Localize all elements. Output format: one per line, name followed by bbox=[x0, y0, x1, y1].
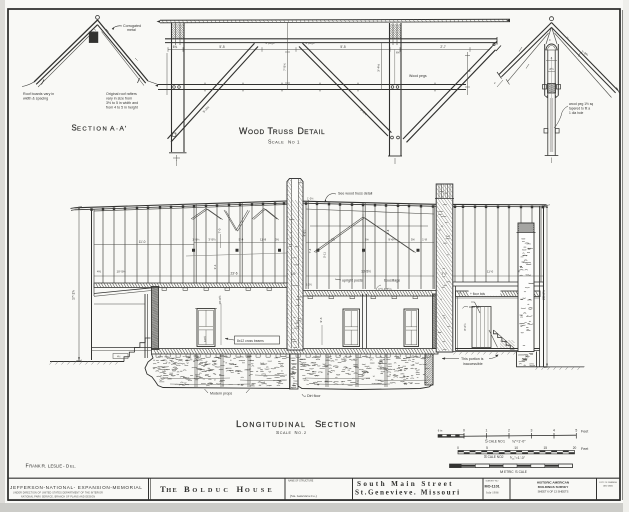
svg-text:ESLIE: ESLIE bbox=[51, 464, 63, 469]
svg-text:2 pegs: 2 pegs bbox=[265, 41, 275, 45]
svg-text:5'-5: 5'-5 bbox=[340, 45, 345, 49]
svg-text:3'-5½: 3'-5½ bbox=[208, 238, 216, 242]
svg-text:3½: 3½ bbox=[275, 238, 280, 242]
svg-text:This portion is: This portion is bbox=[461, 357, 484, 361]
svg-text:from 4 to 5 in height: from 4 to 5 in height bbox=[106, 106, 138, 110]
svg-text:2'-7: 2'-7 bbox=[440, 45, 445, 49]
svg-text:See wood truss detail: See wood truss detail bbox=[338, 192, 373, 196]
svg-text:3: 3 bbox=[531, 429, 533, 433]
svg-text:5'-5: 5'-5 bbox=[219, 45, 224, 49]
svg-text:7'-5¾: 7'-5¾ bbox=[283, 63, 287, 71]
svg-text:ETRIC: ETRIC bbox=[504, 470, 514, 474]
svg-text:10'-5¾: 10'-5¾ bbox=[116, 270, 126, 274]
svg-text:11'-8: 11'-8 bbox=[260, 238, 267, 242]
svg-text:3'-4⅛: 3'-4⅛ bbox=[377, 64, 381, 72]
svg-text:23'-6: 23'-6 bbox=[231, 272, 238, 276]
svg-text:South Main Street: South Main Street bbox=[357, 480, 454, 488]
svg-text:8'-6½: 8'-6½ bbox=[463, 323, 467, 331]
svg-text:R. L: R. L bbox=[42, 464, 51, 470]
svg-text:UNDER DIRECTION OF UNITED STAT: UNDER DIRECTION OF UNITED STATES DEPARTM… bbox=[13, 492, 103, 495]
svg-text:RANK: RANK bbox=[29, 464, 41, 469]
svg-text:3'-0: 3'-0 bbox=[442, 272, 447, 276]
svg-text:CALE: CALE bbox=[280, 431, 292, 435]
svg-text:S: S bbox=[484, 454, 487, 459]
svg-text:COPY OF DRAWING: COPY OF DRAWING bbox=[599, 481, 618, 484]
svg-text:A·A’: A·A’ bbox=[110, 126, 128, 133]
svg-text:. 2: . 2 bbox=[302, 430, 306, 435]
svg-text:6¾: 6¾ bbox=[365, 238, 370, 242]
svg-text:Wood pegs: Wood pegs bbox=[409, 74, 427, 78]
svg-text:(7½ & 8½): (7½ & 8½) bbox=[378, 287, 392, 291]
svg-text:4-6½: 4-6½ bbox=[203, 335, 207, 342]
svg-text:ONGITUDINAL: ONGITUDINAL bbox=[243, 422, 307, 429]
svg-text:¾”=1’-0”: ¾”=1’-0” bbox=[512, 440, 526, 444]
svg-text:³⁄₁₆”=1’-0”: ³⁄₁₆”=1’-0” bbox=[510, 456, 526, 460]
svg-text:17'-1⅝: 17'-1⅝ bbox=[72, 290, 76, 300]
svg-text:5: 5 bbox=[486, 446, 488, 450]
svg-text:5'-11: 5'-11 bbox=[323, 252, 327, 258]
svg-text:CALE: CALE bbox=[519, 470, 527, 474]
svg-text:CALE NO: CALE NO bbox=[488, 455, 503, 459]
svg-text:7'-4: 7'-4 bbox=[308, 248, 312, 253]
svg-text:9'-6¾: 9'-6¾ bbox=[388, 238, 396, 242]
svg-text:CALE: CALE bbox=[272, 140, 284, 145]
svg-text:N: N bbox=[295, 430, 298, 435]
svg-text:2 pegs: 2 pegs bbox=[305, 41, 315, 45]
svg-text:corn bin: corn bin bbox=[469, 305, 481, 309]
svg-text:1: 1 bbox=[503, 440, 505, 444]
svg-text:- D: - D bbox=[63, 464, 70, 469]
svg-text:10: 10 bbox=[514, 446, 518, 450]
svg-text:OUSE: OUSE bbox=[245, 487, 275, 494]
svg-text:Modern props: Modern props bbox=[210, 392, 232, 396]
svg-text:O: O bbox=[298, 431, 301, 435]
svg-text:(Ste. Genevieve Co.): (Ste. Genevieve Co.) bbox=[290, 494, 317, 498]
svg-text:8'5: 8'5 bbox=[331, 238, 335, 242]
svg-text:width & spacing: width & spacing bbox=[23, 97, 48, 101]
svg-text:8x12 cross beams: 8x12 cross beams bbox=[237, 339, 264, 343]
svg-text:wood peg 1½ sq: wood peg 1½ sq bbox=[569, 102, 593, 106]
svg-text:OLDUC: OLDUC bbox=[192, 487, 231, 494]
svg-text:1'-8: 1'-8 bbox=[422, 238, 427, 242]
svg-text:bousillage: bousillage bbox=[384, 279, 400, 283]
svg-text:2: 2 bbox=[502, 455, 504, 459]
svg-text:Roof boards vary in: Roof boards vary in bbox=[23, 92, 54, 96]
svg-text:4: 4 bbox=[553, 429, 555, 433]
svg-text:11'-0: 11'-0 bbox=[487, 270, 494, 274]
svg-text:4’: 4’ bbox=[518, 270, 521, 274]
svg-text:O: O bbox=[292, 141, 295, 145]
svg-text:S: S bbox=[515, 469, 518, 474]
svg-text:JEFFERSON-NATIONAL- EXPANSION-: JEFFERSON-NATIONAL- EXPANSION-MEMORIAL bbox=[10, 485, 143, 490]
svg-text:1'-8: 1'-8 bbox=[386, 229, 390, 234]
svg-text:1'-0: 1'-0 bbox=[291, 272, 296, 276]
svg-text:Dirt floor: Dirt floor bbox=[307, 394, 321, 398]
svg-text:ECTION: ECTION bbox=[322, 422, 357, 429]
svg-text:inaccessible: inaccessible bbox=[463, 362, 483, 366]
svg-text:BUILDINGS SURVEY: BUILDINGS SURVEY bbox=[538, 485, 569, 489]
svg-text:5¼: 5¼ bbox=[411, 238, 416, 242]
svg-text:1’: 1’ bbox=[469, 69, 472, 73]
svg-text:3½ to 5 in width and: 3½ to 5 in width and bbox=[106, 101, 138, 105]
svg-text:S: S bbox=[276, 430, 279, 436]
svg-text:2: 2 bbox=[508, 429, 510, 433]
svg-text:metal: metal bbox=[127, 28, 136, 32]
svg-text:upright posts: upright posts bbox=[342, 279, 363, 283]
svg-text:W: W bbox=[239, 126, 248, 136]
svg-text:SHEET 6 OF 13 SHEETS: SHEET 6 OF 13 SHEETS bbox=[538, 490, 569, 494]
svg-text:July 1936: July 1936 bbox=[486, 491, 499, 495]
svg-text:HE: HE bbox=[166, 487, 178, 494]
svg-text:1: 1 bbox=[486, 429, 488, 433]
svg-text:5'-4: 5'-4 bbox=[239, 238, 244, 242]
svg-text:6¼: 6¼ bbox=[396, 51, 401, 55]
svg-text:Original roof rafters: Original roof rafters bbox=[106, 92, 137, 96]
svg-text:6 in: 6 in bbox=[438, 429, 443, 433]
svg-text:1 dia hole: 1 dia hole bbox=[569, 111, 583, 115]
svg-text:5: 5 bbox=[575, 429, 577, 433]
svg-text:EL.: EL. bbox=[70, 464, 76, 469]
svg-text:AND DATA: AND DATA bbox=[603, 485, 613, 488]
svg-text:NATIONAL PARK SERVICE, BRANCH: NATIONAL PARK SERVICE, BRANCH OF PLANS A… bbox=[21, 495, 95, 498]
svg-text:CALE NO: CALE NO bbox=[489, 440, 504, 444]
svg-text:4'-6½: 4'-6½ bbox=[303, 229, 307, 236]
svg-text:6¾: 6¾ bbox=[173, 45, 178, 49]
svg-text:B: B bbox=[184, 484, 192, 494]
svg-text:28'-9½: 28'-9½ bbox=[542, 290, 546, 300]
svg-text:1-0½: 1-0½ bbox=[306, 283, 313, 287]
svg-text:13'-5½: 13'-5½ bbox=[361, 270, 371, 274]
svg-text:ECTION: ECTION bbox=[77, 127, 108, 133]
svg-text:Feet: Feet bbox=[581, 447, 588, 451]
svg-text:3'-1: 3'-1 bbox=[213, 264, 217, 269]
svg-text:vary in size from: vary in size from bbox=[106, 97, 132, 101]
svg-text:1'-5¾: 1'-5¾ bbox=[307, 197, 314, 201]
svg-text:OOD: OOD bbox=[248, 129, 265, 136]
svg-text:tapered to fit a: tapered to fit a bbox=[569, 107, 590, 111]
svg-text:NAME OF STRUCTURE: NAME OF STRUCTURE bbox=[288, 479, 314, 482]
svg-text:Feet: Feet bbox=[581, 430, 588, 434]
svg-text:7'-0: 7'-0 bbox=[218, 228, 222, 233]
svg-text:0: 0 bbox=[463, 429, 465, 433]
svg-text:MO-1101: MO-1101 bbox=[485, 485, 500, 489]
svg-text:9'-6: 9'-6 bbox=[319, 317, 323, 322]
svg-text:4½: 4½ bbox=[97, 270, 102, 274]
svg-text:1'-5¾: 1'-5¾ bbox=[192, 238, 200, 242]
svg-text:M: M bbox=[500, 469, 503, 474]
svg-text:SURVEY NO: SURVEY NO bbox=[486, 480, 499, 482]
svg-text:15: 15 bbox=[544, 446, 548, 450]
svg-text:10'-0½: 10'-0½ bbox=[218, 295, 222, 305]
svg-text:S: S bbox=[485, 439, 488, 444]
svg-text:0: 0 bbox=[457, 446, 459, 450]
svg-text:2½: 2½ bbox=[549, 67, 554, 71]
svg-text:RUSS: RUSS bbox=[273, 129, 294, 136]
svg-text:L: L bbox=[236, 419, 242, 430]
svg-text:20: 20 bbox=[573, 446, 577, 450]
svg-text:St.Genevieve. Missouri: St.Genevieve. Missouri bbox=[355, 489, 461, 497]
svg-text:+ floor bds: + floor bds bbox=[470, 292, 485, 296]
svg-text:ETAIL: ETAIL bbox=[304, 129, 325, 136]
svg-text:11'-0: 11'-0 bbox=[139, 240, 146, 244]
